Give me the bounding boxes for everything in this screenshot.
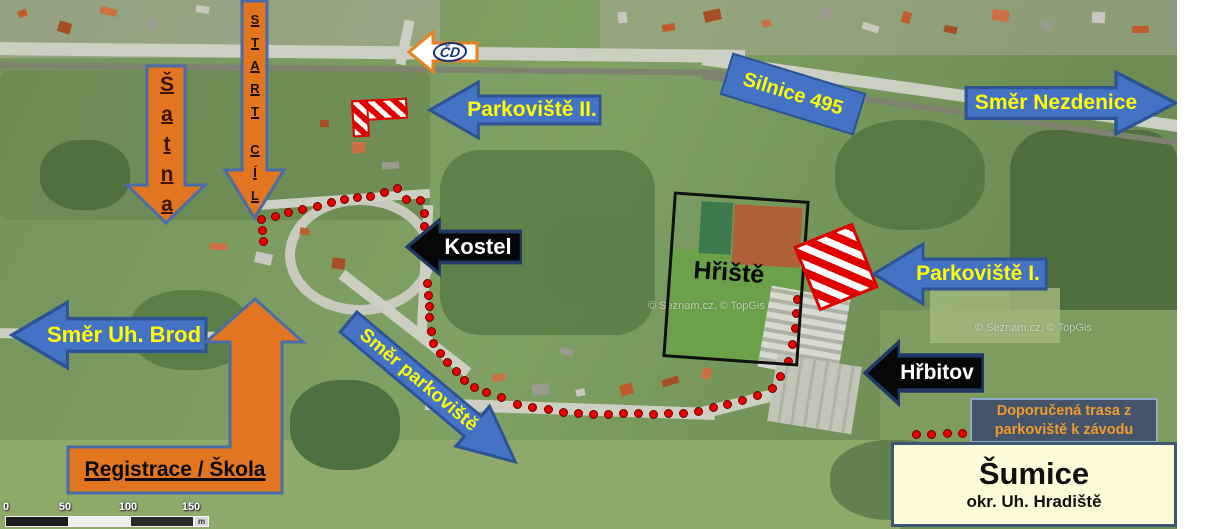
event-map-poster: © Seznam.cz, © TopGis © Seznam.cz, © Top… xyxy=(0,0,1224,529)
scale-tick-150: 150 xyxy=(182,501,200,513)
route-dot xyxy=(366,192,375,201)
route-dot xyxy=(776,372,785,381)
map-cemetery xyxy=(767,354,862,434)
map-house-roof xyxy=(531,383,550,397)
route-dot xyxy=(393,184,402,193)
scale-bar-segment-dark2 xyxy=(131,517,193,526)
hriste-label: Hřiště xyxy=(692,256,765,290)
route-dot xyxy=(649,410,658,419)
legend-route-dot xyxy=(927,430,936,439)
start-cil-arrow: START CÍL xyxy=(222,0,287,220)
route-dot xyxy=(327,198,336,207)
map-tree-4 xyxy=(545,215,640,305)
route-dot xyxy=(544,405,553,414)
map-house-roof xyxy=(1092,12,1106,24)
map-house-roof xyxy=(254,251,273,266)
map-house-roof xyxy=(661,376,679,388)
route-dot xyxy=(258,226,267,235)
legend-route-dot xyxy=(958,429,967,438)
start-label: START xyxy=(240,8,270,123)
satna-arrow: Šatna xyxy=(112,64,212,226)
kostel-label: Kostel xyxy=(406,218,522,276)
route-dot xyxy=(353,193,362,202)
cd-railways-logo: ČD xyxy=(431,42,468,62)
route-legend-box: Doporučená trasa z parkoviště k závodu xyxy=(970,398,1158,443)
map-house-roof xyxy=(700,367,712,380)
route-dot xyxy=(738,396,747,405)
route-dot xyxy=(604,410,613,419)
route-dot xyxy=(416,196,425,205)
route-dot xyxy=(589,410,598,419)
town-name: Šumice xyxy=(979,457,1089,491)
route-dot xyxy=(664,409,673,418)
route-dot xyxy=(528,403,537,412)
parking2-hatch-vertical xyxy=(351,100,370,138)
parkoviste2-arrow: Parkoviště II. xyxy=(428,80,602,140)
route-dot xyxy=(298,205,307,214)
satna-label: Šatna xyxy=(150,70,184,220)
route-dot xyxy=(420,209,429,218)
scale-bar-segment-light xyxy=(68,517,130,526)
parking2-hatched-area xyxy=(351,98,411,139)
route-dot xyxy=(723,400,732,409)
route-dot xyxy=(634,409,643,418)
hrbitov-label: Hřbitov xyxy=(864,340,984,406)
smer-nezdenice-label: Směr Nezdenice xyxy=(964,70,1177,136)
cil-label: CÍL xyxy=(240,138,270,207)
registrace-label: Registrace / Škola xyxy=(68,447,282,493)
legend-route-dot xyxy=(912,430,921,439)
route-dot xyxy=(679,409,688,418)
parkoviste1-arrow: Parkoviště I. xyxy=(872,242,1048,306)
map-house-roof xyxy=(575,388,585,397)
route-dot xyxy=(259,237,268,246)
route-dot xyxy=(619,409,628,418)
registrace-arrow: Registrace / Škola xyxy=(60,295,310,500)
scale-tick-50: 50 xyxy=(59,501,71,513)
map-house-roof xyxy=(382,161,399,169)
town-title-box: Šumice okr. Uh. Hradiště xyxy=(891,442,1177,527)
scale-bar xyxy=(5,516,194,527)
route-dot xyxy=(313,202,322,211)
route-dot xyxy=(429,339,438,348)
route-dot xyxy=(423,279,432,288)
map-house-roof xyxy=(299,227,309,235)
map-house-roof xyxy=(1042,22,1052,30)
map-house-roof xyxy=(331,257,345,270)
watermark-right: © Seznam.cz, © TopGis xyxy=(975,322,1092,334)
map-house-roof xyxy=(619,383,634,397)
scale-tick-0: 0 xyxy=(3,501,9,513)
map-canvas: © Seznam.cz, © TopGis © Seznam.cz, © Top… xyxy=(0,0,1177,529)
route-dot xyxy=(513,400,522,409)
map-house-roof xyxy=(617,11,627,23)
route-dot xyxy=(768,384,777,393)
route-dot xyxy=(380,188,389,197)
route-dot xyxy=(425,313,434,322)
route-dot xyxy=(709,403,718,412)
route-dot xyxy=(694,407,703,416)
map-house-roof xyxy=(352,142,365,153)
route-legend-line1: Doporučená trasa z xyxy=(997,402,1132,421)
route-dot xyxy=(559,408,568,417)
map-village-top-right xyxy=(600,0,1177,55)
route-dot xyxy=(424,291,433,300)
map-house-roof xyxy=(1132,26,1149,33)
scale-unit-label: m xyxy=(194,516,209,527)
hrbitov-arrow: Hřbitov xyxy=(864,340,984,406)
map-house-roof xyxy=(559,346,573,356)
route-dot xyxy=(753,391,762,400)
parkoviste1-label: Parkoviště I. xyxy=(872,242,1048,306)
map-house-roof xyxy=(492,373,506,381)
parkoviste2-label: Parkoviště II. xyxy=(428,80,602,140)
town-district: okr. Uh. Hradiště xyxy=(966,491,1101,513)
map-house-roof xyxy=(320,120,329,127)
route-dot xyxy=(497,393,506,402)
kostel-arrow: Kostel xyxy=(406,218,522,276)
route-dot xyxy=(482,388,491,397)
smer-nezdenice-arrow: Směr Nezdenice xyxy=(964,70,1177,136)
route-dot xyxy=(340,195,349,204)
route-legend-line2: parkoviště k závodu xyxy=(995,421,1134,440)
scale-tick-100: 100 xyxy=(119,501,137,513)
hriste-outline: Hřiště xyxy=(662,191,809,366)
route-dot xyxy=(427,327,436,336)
scale-bar-segment-dark1 xyxy=(6,517,68,526)
route-dot xyxy=(436,349,445,358)
legend-route-dot xyxy=(943,429,952,438)
route-dot xyxy=(425,302,434,311)
route-dot xyxy=(574,409,583,418)
map-house-roof xyxy=(210,242,227,250)
route-dot xyxy=(402,195,411,204)
cd-station-arrow: ČD xyxy=(406,30,480,74)
map-tree-5 xyxy=(835,120,985,230)
